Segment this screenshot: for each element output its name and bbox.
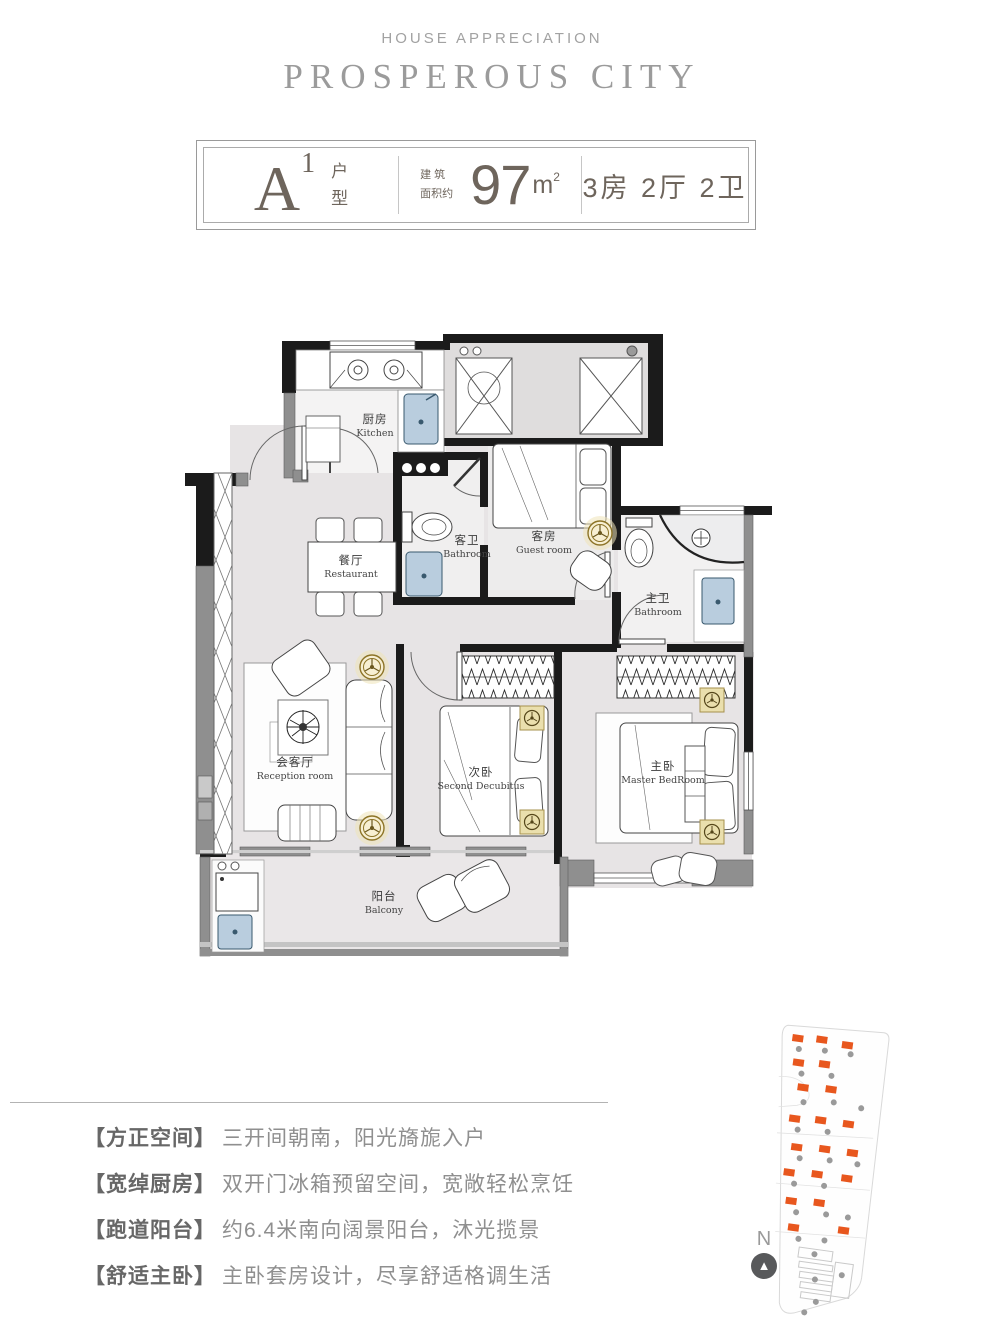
feature-desc: 主卧套房设计，尽享舒适格调生活 [222,1265,552,1288]
floor-plan: 厨房 Kitchen 餐厅 Restaurant 客卫 Bathroom 客房 … [180,330,780,990]
feature-item: 【舒适主卧】主卧套房设计，尽享舒适格调生活 [84,1262,574,1291]
poster: HOUSE APPRECIATION PROSPEROUS CITY A1 户 … [0,0,984,1325]
feature-tag: 【跑道阳台】 [84,1219,216,1242]
floor-plan-drawing [180,330,780,990]
compass-north-label: N [744,1228,784,1251]
ceiling-light-reception-1 [355,650,389,684]
unit-type: A1 户 型 [204,148,398,222]
area-unit: m2 [532,170,560,200]
wall-light-second-bedroom-2 [520,810,544,834]
area-prefix: 建 筑 面积约 [420,166,462,203]
wall-light-master-bedroom-2 [700,820,724,844]
ceiling-light-reception-2 [355,811,389,845]
unit-letter-main: A [254,153,300,224]
wall-light-master-bedroom-1 [700,688,724,712]
area-value: 97 [470,157,530,213]
room-count: 3房 2厅 2卫 [582,148,748,222]
feature-tag: 【宽绰厨房】 [84,1173,216,1196]
feature-tag: 【舒适主卧】 [84,1265,216,1288]
wall-light-second-bedroom-1 [520,706,544,730]
unit-badge: A1 户 型 建 筑 面积约 97 m2 3房 2厅 2卫 [196,140,756,230]
header-eyebrow: HOUSE APPRECIATION [0,30,984,47]
header: HOUSE APPRECIATION PROSPEROUS CITY [0,30,984,97]
header-title: PROSPEROUS CITY [0,57,984,97]
unit-letter: A1 [254,150,315,221]
feature-desc: 约6.4米南向阔景阳台，沐光揽景 [222,1219,540,1242]
unit-badge-inner: A1 户 型 建 筑 面积约 97 m2 3房 2厅 2卫 [203,147,749,223]
unit-type-label: 户 型 [331,158,348,212]
feature-item: 【宽绰厨房】双开门冰箱预留空间，宽敞轻松烹饪 [84,1170,574,1199]
feature-desc: 三开间朝南，阳光旖旎入户 [222,1127,486,1150]
unit-area: 建 筑 面积约 97 m2 [399,148,581,222]
feature-desc: 双开门冰箱预留空间，宽敞轻松烹饪 [222,1173,574,1196]
feature-list: 【方正空间】三开间朝南，阳光旖旎入户 【宽绰厨房】双开门冰箱预留空间，宽敞轻松烹… [84,1124,574,1308]
meter-box [402,463,440,473]
unit-letter-sup: 1 [301,148,315,179]
compass: N ▲ [744,1228,784,1279]
section-divider [10,1102,608,1103]
feature-item: 【跑道阳台】约6.4米南向阔景阳台，沐光揽景 [84,1216,574,1245]
compass-arrow-icon: ▲ [751,1253,777,1279]
feature-item: 【方正空间】三开间朝南，阳光旖旎入户 [84,1124,574,1153]
balcony-door-track [200,850,554,853]
feature-tag: 【方正空间】 [84,1127,216,1150]
ceiling-light-guest-room [583,516,617,550]
